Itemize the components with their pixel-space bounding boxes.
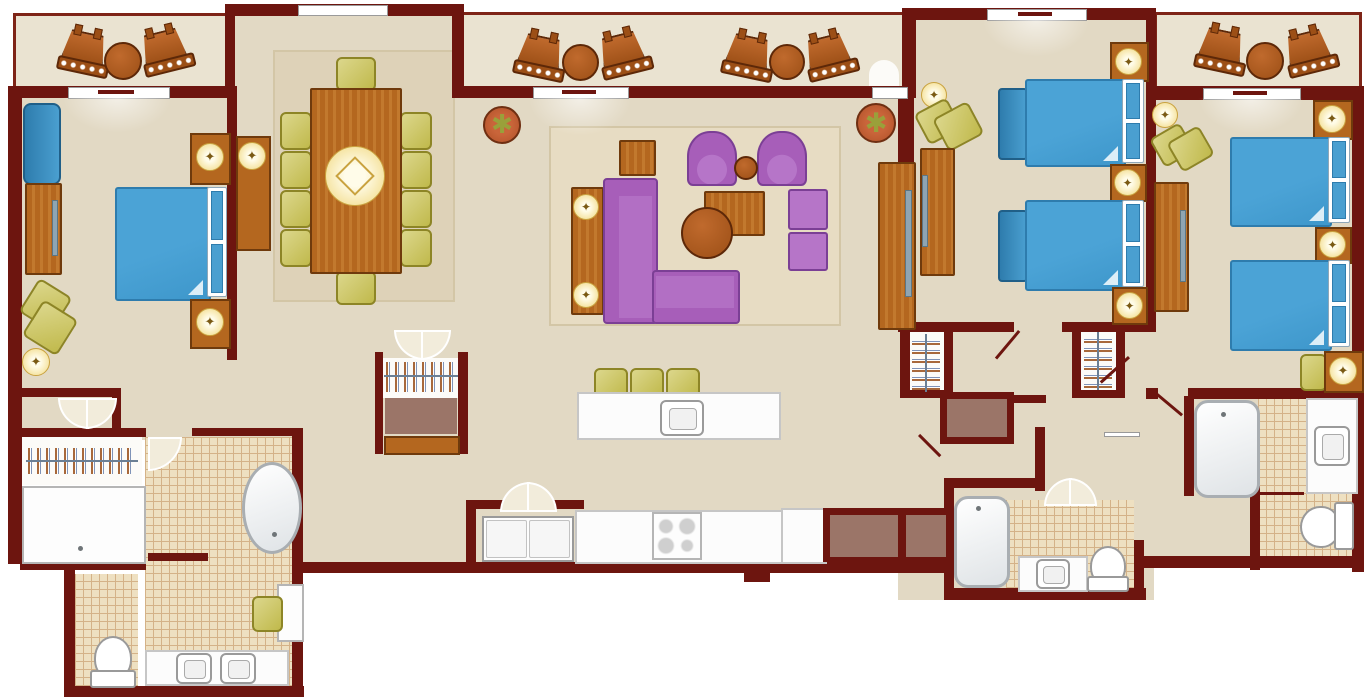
balcony-table xyxy=(769,44,805,80)
lamp-star-icon: ✦ xyxy=(247,150,258,163)
living-tv xyxy=(905,190,912,297)
dining-chair xyxy=(336,57,376,91)
towel-bar xyxy=(1260,492,1304,495)
closet-rod xyxy=(26,460,138,462)
bedroom3-tv xyxy=(1180,210,1186,282)
ottoman xyxy=(788,189,828,230)
table-lamp: ✦ xyxy=(1318,105,1346,133)
wall xyxy=(148,553,208,561)
wall xyxy=(944,478,1042,488)
headboard xyxy=(1328,137,1350,223)
sink-basin xyxy=(669,408,697,430)
wall xyxy=(1184,396,1194,496)
rocking-chair-post xyxy=(1308,23,1318,36)
table-lamp: ✦ xyxy=(1329,357,1357,385)
table-lamp: ✦ xyxy=(1114,169,1141,196)
wall xyxy=(460,86,914,98)
bedroom3-bench xyxy=(1300,354,1327,391)
island-sink xyxy=(660,400,704,436)
range-cooktop xyxy=(652,512,702,560)
rocking-chair-post xyxy=(602,30,612,43)
wall xyxy=(452,4,464,98)
bathroom3-tub xyxy=(1194,400,1260,498)
bed-fold xyxy=(1103,146,1118,161)
dining-centerpiece xyxy=(325,146,385,206)
vanity-sink xyxy=(1036,559,1070,589)
wall xyxy=(1138,556,1362,568)
living-armchair xyxy=(757,131,807,186)
rocking-chair-post xyxy=(808,32,818,45)
window-mullion xyxy=(1018,12,1052,16)
lamp-star-icon: ✦ xyxy=(1124,300,1134,312)
wall xyxy=(1352,86,1364,572)
end-table xyxy=(619,140,656,176)
lamp-star-icon: ✦ xyxy=(1327,113,1338,126)
window-light xyxy=(1198,98,1304,134)
headboard xyxy=(1122,79,1144,163)
rocking-chair-post xyxy=(1288,28,1298,41)
lamp-star-icon: ✦ xyxy=(929,89,939,101)
table-lamp: ✦ xyxy=(1115,48,1142,75)
fridge-door xyxy=(529,520,570,558)
closet-bench xyxy=(384,436,460,455)
lamp-star-icon: ✦ xyxy=(205,151,216,164)
sink-basin xyxy=(1043,566,1064,585)
wall xyxy=(900,332,910,396)
wall xyxy=(1035,427,1045,491)
headboard xyxy=(1328,260,1350,347)
wall xyxy=(466,500,476,568)
wall xyxy=(1072,390,1125,398)
towel-bar xyxy=(1104,432,1140,437)
closet-hangers xyxy=(386,362,456,392)
wall xyxy=(1010,395,1046,403)
sectional-sofa-vertical xyxy=(603,178,658,324)
rocking-chair xyxy=(514,28,567,82)
window-light xyxy=(62,97,172,133)
floor-plan: ✦ ✦ ✦ ✦ ✱ ✱ ✦ ✦ xyxy=(0,0,1368,700)
window-mullion xyxy=(1233,91,1267,95)
wall xyxy=(1134,556,1144,600)
lamp-star-icon: ✦ xyxy=(31,356,42,369)
headboard-panel xyxy=(1332,306,1346,344)
lamp-star-icon: ✦ xyxy=(1160,109,1170,121)
lamp-star-icon: ✦ xyxy=(1122,177,1132,189)
master-vanity xyxy=(145,650,289,686)
lamp-star-icon: ✦ xyxy=(205,316,216,329)
fridge-door xyxy=(486,520,527,558)
wall xyxy=(944,332,953,396)
balcony-table xyxy=(1246,42,1284,80)
rocking-chair-post xyxy=(622,25,632,38)
balcony-table xyxy=(104,42,142,80)
headboard-panel xyxy=(1126,246,1140,284)
dining-chair xyxy=(280,151,312,189)
rocking-chair xyxy=(1195,22,1248,76)
wall xyxy=(902,8,916,98)
living-armchair xyxy=(687,131,737,186)
dining-chair xyxy=(280,190,312,228)
window xyxy=(298,5,388,16)
sofa-seat xyxy=(656,276,734,308)
shower xyxy=(22,486,146,564)
corridor-floor xyxy=(292,440,468,570)
laundry-shelf xyxy=(947,399,1007,437)
rocking-chair-post xyxy=(164,22,174,35)
lamp-star-icon: ✦ xyxy=(581,289,591,301)
bed-fold xyxy=(1309,330,1324,345)
headboard-panel xyxy=(1126,123,1140,159)
rocking-chair-post xyxy=(828,27,838,40)
window-light xyxy=(982,19,1090,57)
master-tub xyxy=(242,462,302,554)
dining-chair xyxy=(400,151,432,189)
master-headboard xyxy=(207,187,227,297)
rocking-chair-post xyxy=(144,27,154,40)
toilet-tank xyxy=(1087,576,1129,592)
bed-fold xyxy=(1309,206,1324,221)
table-lamp: ✦ xyxy=(196,143,224,171)
window xyxy=(872,87,908,99)
plant-icon: ✱ xyxy=(865,108,888,139)
refrigerator xyxy=(482,516,574,562)
bath-bench xyxy=(252,596,283,632)
rocking-chair xyxy=(722,28,775,82)
closet-shelf xyxy=(385,398,457,434)
plant-icon: ✱ xyxy=(491,110,513,140)
headboard-panel xyxy=(1332,141,1346,178)
sink-basin xyxy=(228,660,250,679)
ottoman xyxy=(788,232,828,271)
dining-chair xyxy=(400,229,432,267)
table-lamp: ✦ xyxy=(196,308,224,336)
pantry-counter xyxy=(830,515,898,557)
closet-rod xyxy=(384,375,458,377)
table-lamp: ✦ xyxy=(1116,292,1143,319)
tub-drain xyxy=(976,506,981,511)
headboard-panel xyxy=(1126,204,1140,242)
wall xyxy=(22,388,120,397)
ceiling-light: ✦ xyxy=(22,348,50,376)
potted-plant: ✱ xyxy=(483,106,521,144)
master-tv xyxy=(52,200,58,256)
coffee-table xyxy=(681,207,733,259)
vanity-sink xyxy=(1314,426,1350,466)
wall xyxy=(1072,330,1081,396)
table-lamp: ✦ xyxy=(1319,231,1346,258)
dining-chair xyxy=(336,271,376,305)
balcony-door-swing xyxy=(869,60,899,86)
bathroom2-tub xyxy=(954,496,1010,588)
sectional-sofa-horizontal xyxy=(652,270,740,324)
counter-segment xyxy=(781,508,827,564)
rocking-chair xyxy=(58,24,111,78)
dining-chair xyxy=(400,190,432,228)
shower-drain xyxy=(78,546,83,551)
lamp-star-icon: ✦ xyxy=(1123,56,1133,68)
headboard-panel xyxy=(1126,83,1140,119)
console-lamp: ✦ xyxy=(573,282,599,308)
wall xyxy=(225,4,235,98)
wall xyxy=(192,428,296,436)
headboard xyxy=(1122,200,1144,287)
potted-plant: ✱ xyxy=(856,103,896,143)
bed-fold xyxy=(1103,270,1118,285)
headboard-panel xyxy=(211,191,223,240)
wall xyxy=(64,564,75,697)
tub-drain xyxy=(272,532,277,537)
vanity-sink xyxy=(176,653,212,684)
sink-basin xyxy=(184,660,206,679)
headboard-panel xyxy=(211,244,223,293)
sink-basin xyxy=(1322,434,1344,459)
pantry-counter xyxy=(906,515,946,557)
lamp-star-icon: ✦ xyxy=(581,201,591,213)
balcony-table xyxy=(562,44,599,81)
headboard-panel xyxy=(1332,264,1346,302)
console-lamp: ✦ xyxy=(573,194,599,220)
dining-chair xyxy=(280,112,312,150)
toilet-tank xyxy=(90,670,136,688)
window-mullion xyxy=(98,90,134,94)
master-chaise xyxy=(23,103,61,185)
entry-bump xyxy=(744,562,770,582)
lamp-star-icon: ✦ xyxy=(1338,365,1349,378)
headboard-panel xyxy=(1332,182,1346,219)
bed-bench xyxy=(998,88,1028,160)
closet-rod xyxy=(925,334,927,392)
master-bed-fold xyxy=(188,280,203,295)
wall xyxy=(20,428,146,437)
centerpiece-diamond xyxy=(335,156,375,196)
sofa-seat xyxy=(619,196,652,318)
round-side-table xyxy=(734,156,758,180)
dining-chair xyxy=(280,229,312,267)
tub-drain xyxy=(1221,412,1226,417)
bedroom2-tv xyxy=(922,175,928,247)
buffet-lamp: ✦ xyxy=(238,142,266,170)
vanity-sink xyxy=(220,653,256,684)
lamp-star-icon: ✦ xyxy=(1327,239,1337,251)
bed-bench xyxy=(998,210,1028,282)
toilet-tank xyxy=(1334,502,1354,550)
dining-chair xyxy=(400,112,432,150)
window-light xyxy=(528,98,632,136)
window-mullion xyxy=(562,90,596,94)
wall xyxy=(375,352,383,454)
